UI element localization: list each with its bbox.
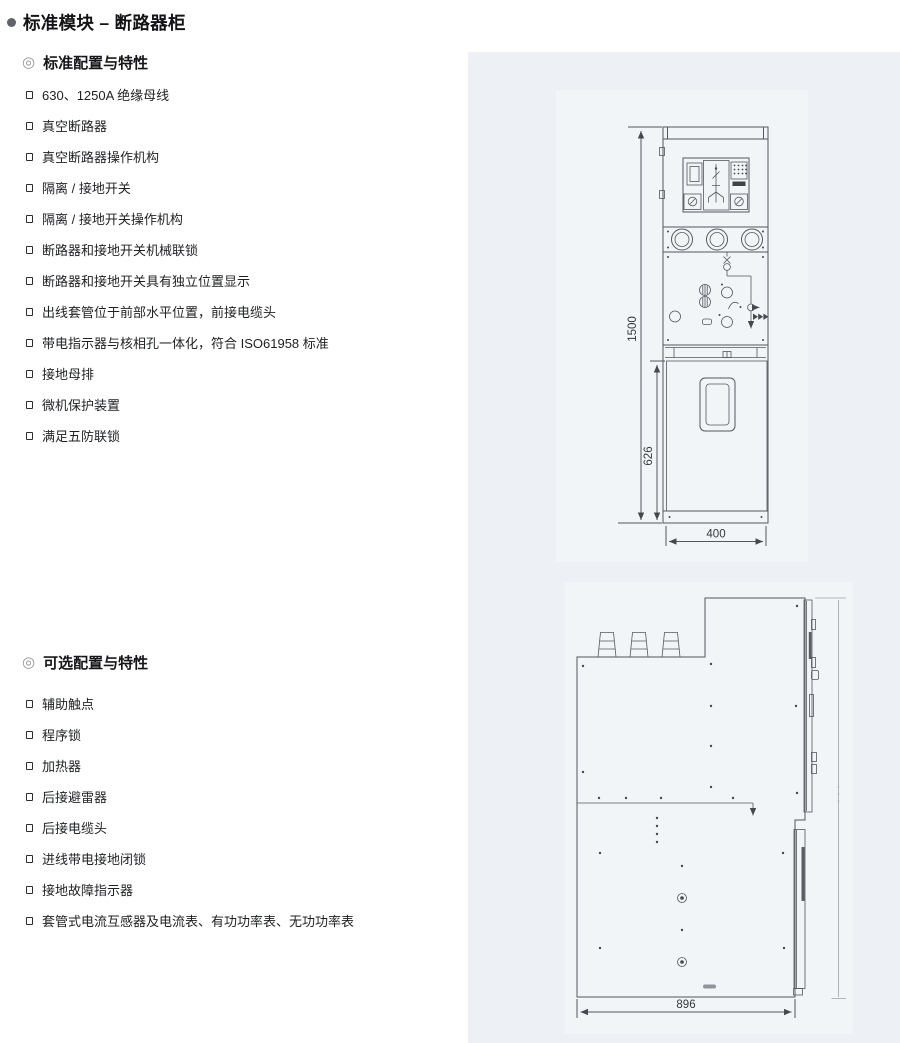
diagram-canvas: 1500 626 (468, 52, 900, 1043)
list-item: 套管式电流互感器及电流表、有功功率表、无功功率表 (26, 905, 456, 936)
diagram-panel: 1500 626 (468, 52, 900, 1043)
side-view-diagram: 896 (565, 582, 853, 1034)
list-item: 带电指示器与核相孔一体化，符合 ISO61958 标准 (26, 327, 456, 358)
square-bullet-icon (26, 308, 33, 316)
section-heading-text: 可选配置与特性 (43, 652, 148, 673)
vent-slot (703, 985, 716, 989)
square-bullet-icon (26, 731, 33, 739)
scan-background (556, 90, 808, 562)
list-item: 微机保护装置 (26, 389, 456, 420)
optional-feature-list: 辅助触点 程序锁 加热器 后接避雷器 后接电缆头 进线带电接地闭锁 接地故障指示… (26, 688, 456, 936)
square-bullet-icon (26, 246, 33, 254)
list-item: 断路器和接地开关具有独立位置显示 (26, 265, 456, 296)
square-bullet-icon (26, 824, 33, 832)
square-bullet-icon (26, 91, 33, 99)
dimension-label-width: 400 (706, 529, 725, 541)
list-item: 隔离 / 接地开关操作机构 (26, 203, 456, 234)
page-title-text: 标准模块 – 断路器柜 (23, 10, 186, 35)
square-bullet-icon (26, 886, 33, 894)
page-title: 标准模块 – 断路器柜 (7, 10, 186, 35)
square-bullet-icon (26, 432, 33, 440)
square-bullet-icon (26, 762, 33, 770)
square-bullet-icon (26, 401, 33, 409)
section-heading-standard: ◎ 标准配置与特性 (22, 52, 148, 73)
front-view-diagram: 1500 626 (556, 90, 808, 562)
dimension-label-depth: 896 (676, 999, 695, 1011)
square-bullet-icon (26, 370, 33, 378)
double-circle-icon: ◎ (22, 655, 35, 670)
list-item: 真空断路器操作机构 (26, 141, 456, 172)
square-bullet-icon (26, 277, 33, 285)
square-bullet-icon (26, 855, 33, 863)
list-item: 后接避雷器 (26, 781, 456, 812)
list-item: 断路器和接地开关机械联锁 (26, 234, 456, 265)
list-item: 接地故障指示器 (26, 874, 456, 905)
list-item: 真空断路器 (26, 110, 456, 141)
square-bullet-icon (26, 700, 33, 708)
list-item: 接地母排 (26, 358, 456, 389)
double-circle-icon: ◎ (22, 55, 35, 70)
list-item: 后接电缆头 (26, 812, 456, 843)
list-item: 满足五防联锁 (26, 420, 456, 451)
square-bullet-icon (26, 339, 33, 347)
dimension-label-lower-height: 626 (643, 446, 655, 465)
section-heading-optional: ◎ 可选配置与特性 (22, 652, 148, 673)
dimension-label-total-height: 1500 (627, 316, 639, 342)
square-bullet-icon (26, 153, 33, 161)
square-bullet-icon (26, 793, 33, 801)
list-item: 进线带电接地闭锁 (26, 843, 456, 874)
nameplate (733, 182, 746, 187)
list-item: 辅助触点 (26, 688, 456, 719)
list-item: 出线套管位于前部水平位置，前接电缆头 (26, 296, 456, 327)
section-heading-text: 标准配置与特性 (43, 52, 148, 73)
square-bullet-icon (26, 917, 33, 925)
square-bullet-icon (26, 184, 33, 192)
square-bullet-icon (26, 122, 33, 130)
list-item: 隔离 / 接地开关 (26, 172, 456, 203)
square-bullet-icon (26, 215, 33, 223)
list-item: 加热器 (26, 750, 456, 781)
standard-feature-list: 630、1250A 绝缘母线 真空断路器 真空断路器操作机构 隔离 / 接地开关… (26, 79, 456, 451)
title-bullet-icon (7, 18, 16, 27)
list-item: 程序锁 (26, 719, 456, 750)
list-item: 630、1250A 绝缘母线 (26, 79, 456, 110)
